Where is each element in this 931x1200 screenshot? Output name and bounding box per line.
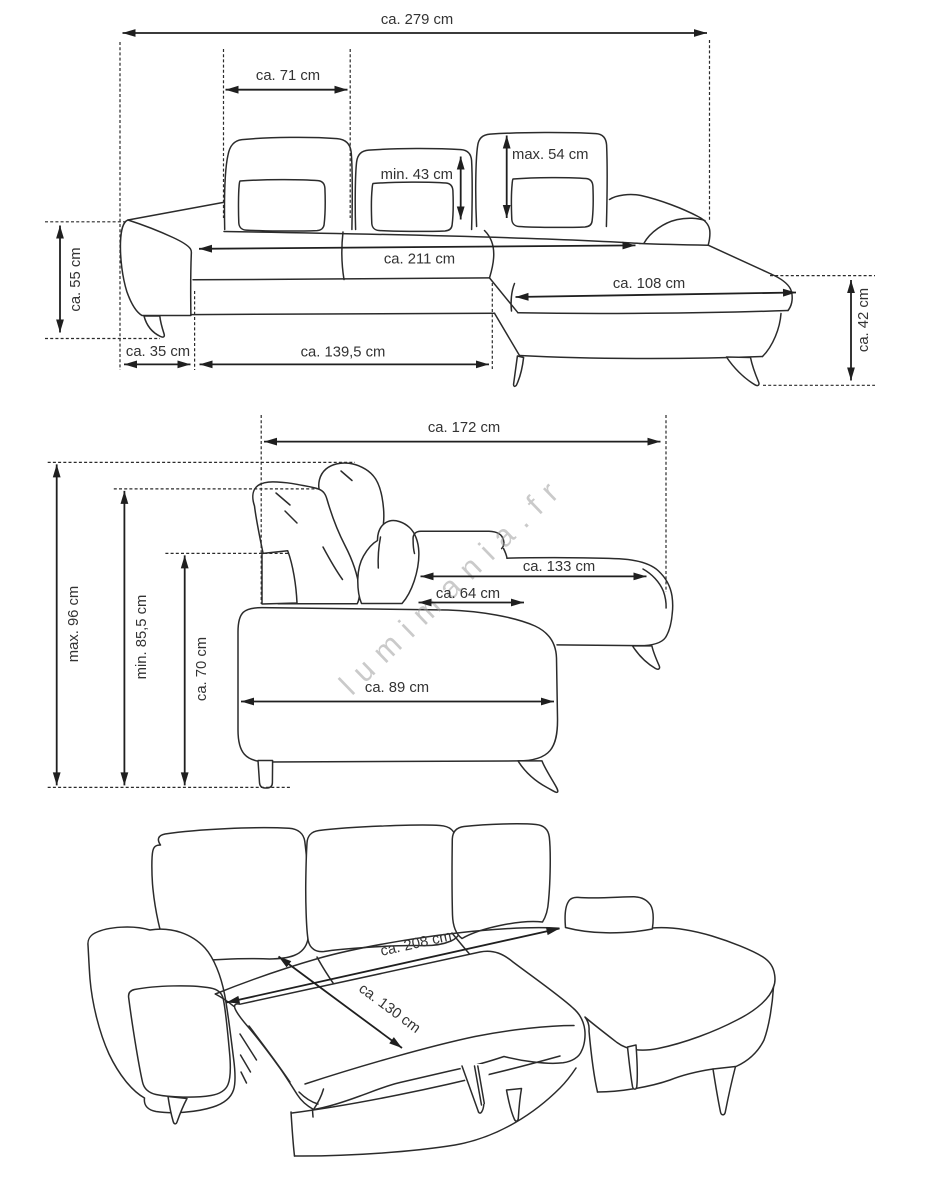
svg-text:ca. 279 cm: ca. 279 cm <box>381 12 453 28</box>
svg-text:min. 43 cm: min. 43 cm <box>381 167 453 183</box>
svg-text:ca. 139,5 cm: ca. 139,5 cm <box>301 345 386 361</box>
svg-text:ca. 55 cm: ca. 55 cm <box>68 247 84 311</box>
svg-text:ca. 35 cm: ca. 35 cm <box>126 344 190 360</box>
svg-text:max. 54 cm: max. 54 cm <box>512 147 588 163</box>
svg-text:ca. 64 cm: ca. 64 cm <box>436 586 500 602</box>
svg-text:ca. 211 cm: ca. 211 cm <box>384 252 455 268</box>
svg-text:max. 96 cm: max. 96 cm <box>66 586 82 662</box>
svg-text:ca. 172 cm: ca. 172 cm <box>428 420 500 436</box>
svg-text:ca. 70 cm: ca. 70 cm <box>194 637 210 701</box>
svg-text:ca. 108 cm: ca. 108 cm <box>613 276 685 292</box>
svg-text:min. 85,5 cm: min. 85,5 cm <box>134 595 150 680</box>
svg-text:ca. 71 cm: ca. 71 cm <box>256 68 320 84</box>
svg-text:ca. 89 cm: ca. 89 cm <box>365 680 429 696</box>
svg-text:ca. 42 cm: ca. 42 cm <box>856 288 872 352</box>
svg-text:ca. 133 cm: ca. 133 cm <box>523 559 595 575</box>
